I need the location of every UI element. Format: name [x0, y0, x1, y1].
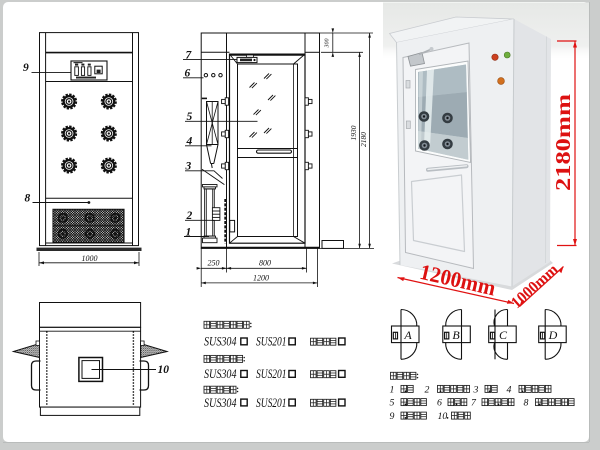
svg-text:9: 9: [23, 62, 29, 74]
svg-text:6: 6: [437, 397, 442, 408]
svg-text:8: 8: [524, 397, 529, 408]
svg-text:1200: 1200: [253, 273, 269, 282]
svg-text:300: 300: [325, 39, 331, 49]
svg-text:1000: 1000: [82, 254, 98, 263]
svg-text:SUS304: SUS304: [204, 396, 237, 410]
svg-text:5: 5: [390, 397, 395, 408]
svg-text:SUS304: SUS304: [204, 334, 237, 348]
svg-text:9: 9: [390, 411, 395, 422]
svg-text:250: 250: [208, 259, 220, 268]
svg-text:8: 8: [25, 193, 31, 205]
svg-text:SUS304: SUS304: [204, 367, 237, 381]
svg-text:SUS201: SUS201: [256, 396, 287, 410]
svg-text:2: 2: [425, 384, 430, 395]
svg-text:SUS201: SUS201: [256, 334, 287, 348]
svg-text:A: A: [403, 328, 412, 342]
svg-text:3: 3: [473, 384, 479, 395]
svg-text:10: 10: [438, 411, 448, 422]
svg-text:1930: 1930: [349, 125, 358, 140]
svg-text:1: 1: [390, 384, 395, 395]
svg-text:2180: 2180: [359, 132, 368, 147]
svg-text:B: B: [452, 328, 460, 342]
svg-text:2180mm: 2180mm: [551, 93, 575, 191]
svg-text:800: 800: [259, 259, 271, 268]
svg-text:SUS201: SUS201: [256, 367, 287, 381]
svg-text:4: 4: [507, 384, 512, 395]
svg-text:D: D: [548, 328, 558, 342]
svg-text:10: 10: [158, 364, 170, 376]
svg-text:C: C: [499, 328, 508, 342]
